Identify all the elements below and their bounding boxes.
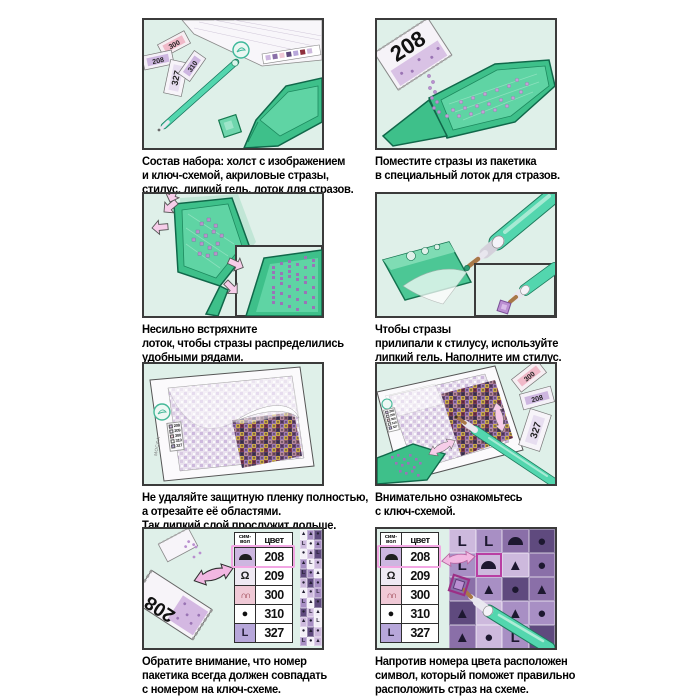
half-circle-symbol xyxy=(508,537,523,545)
color-key-table: сим- волцвет208Ω209∩∩300●310L327 xyxy=(234,532,293,643)
hook-symbol: Ω xyxy=(387,571,396,582)
color-column-header: цвет xyxy=(255,532,292,547)
triangle-symbol: ▲ xyxy=(315,542,320,548)
pattern-cell: ● xyxy=(300,549,307,559)
letter-l-symbol: L xyxy=(302,542,305,548)
pattern-cell: L xyxy=(307,608,314,618)
pattern-cell: ▲ xyxy=(314,637,321,647)
pattern-cell: ● xyxy=(314,578,321,588)
color-number-cell: 310 xyxy=(401,604,438,623)
half-circle-symbol xyxy=(239,554,252,561)
film-illustration-frame: МОСФА 208209300310327 xyxy=(142,362,324,486)
letter-l-symbol: L xyxy=(242,628,249,639)
letter-l-symbol: L xyxy=(458,558,467,573)
mini-key-row: 327 xyxy=(389,425,398,431)
pattern-cell: ▲ xyxy=(449,625,476,649)
key-table-row: L327 xyxy=(380,623,438,642)
triangle-symbol: ▲ xyxy=(308,600,313,606)
triangle-symbol: ▲ xyxy=(308,629,313,635)
pattern-cell xyxy=(476,601,503,625)
dot-symbol: ● xyxy=(302,610,305,616)
gel-illustration xyxy=(377,194,555,316)
pattern-cell: ▲ xyxy=(529,577,556,601)
dot-symbol: ● xyxy=(511,582,520,597)
triangle-symbol: ▲ xyxy=(301,532,306,538)
arch-symbol: ∩∩ xyxy=(241,591,250,600)
rhinestone-packets: 300 208 327 310 xyxy=(144,31,206,97)
pattern-cell xyxy=(502,529,529,553)
pattern-cell: ▲ xyxy=(300,559,307,569)
triangle-symbol: ▲ xyxy=(315,610,320,616)
symbol-illustration-frame: LL●L▲●▲●▲▲▲●▲●L сим- волцвет208Ω209∩∩300… xyxy=(375,527,557,650)
key-table-header: сим- волцвет xyxy=(380,532,438,547)
pattern-cell: ● xyxy=(307,617,314,627)
caption-shake-tray: Несильно встряхните лоток, чтобы стразы … xyxy=(142,323,371,365)
symbol-cell: Ω xyxy=(234,566,255,585)
panel-kit-contents: 300 208 327 310 xyxy=(142,18,324,197)
shake-illustration xyxy=(144,194,322,316)
symbol-cell: ● xyxy=(234,604,255,623)
shake-illustration-frame xyxy=(142,192,324,318)
triangle-symbol: ▲ xyxy=(308,551,313,557)
pattern-cell: L xyxy=(300,637,307,647)
pattern-cell: ● xyxy=(307,540,314,550)
color-number-cell: 327 xyxy=(255,623,292,642)
dot-symbol: ● xyxy=(316,561,319,567)
symbol-cell: L xyxy=(234,623,255,642)
dot-symbol: ● xyxy=(309,619,312,625)
pattern-cell: L xyxy=(300,598,307,608)
dot-symbol: ● xyxy=(309,571,312,577)
dot-symbol: ● xyxy=(316,600,319,606)
pattern-cell: ● xyxy=(314,598,321,608)
pattern-cell: ● xyxy=(314,530,321,540)
triangle-symbol: ▲ xyxy=(455,606,470,621)
pattern-cell: ▲ xyxy=(307,578,314,588)
pattern-cell: L xyxy=(314,549,321,559)
pattern-cell: L xyxy=(476,529,503,553)
pattern-cell: ▲ xyxy=(314,608,321,618)
hook-symbol: Ω xyxy=(241,571,250,582)
pattern-cell: ▲ xyxy=(307,598,314,608)
mini-key-number: 327 xyxy=(176,443,183,448)
pattern-cell xyxy=(449,577,476,601)
caption-kit-contents: Состав набора: холст с изображением и кл… xyxy=(142,155,371,197)
key-table-row: ●310 xyxy=(234,604,292,623)
panel-number-match: 208 сим- волцвет208Ω209∩∩300●310L327 ▲▲●… xyxy=(142,527,324,697)
triangle-symbol: ▲ xyxy=(301,561,306,567)
pattern-cell: L xyxy=(314,617,321,627)
triangle-symbol: ▲ xyxy=(315,571,320,577)
letter-l-symbol: L xyxy=(511,630,520,645)
kit-illustration: 300 208 327 310 xyxy=(144,20,322,148)
pattern-cell: ▲ xyxy=(502,601,529,625)
dot-symbol: ● xyxy=(537,606,546,621)
half-circle-symbol xyxy=(385,554,398,561)
color-column-header: цвет xyxy=(401,532,438,547)
pattern-cell: ● xyxy=(300,578,307,588)
triangle-symbol: ▲ xyxy=(534,582,549,597)
pattern-cell: ● xyxy=(300,627,307,637)
key-table-row: 208 xyxy=(380,547,438,566)
pattern-cell: ▲ xyxy=(314,540,321,550)
dot-symbol: ● xyxy=(242,609,249,620)
match-illustration: 208 xyxy=(144,529,322,648)
color-number-cell: 327 xyxy=(401,623,438,642)
symbol-cell: ● xyxy=(380,604,401,623)
gel-square xyxy=(219,115,242,138)
key-illustration: 300 208 327 xyxy=(377,364,555,484)
color-number-cell: 209 xyxy=(255,566,292,585)
key-table-row: ●310 xyxy=(380,604,438,623)
panel-sticky-gel: Чтобы стразы прилипали к стилусу, исполь… xyxy=(375,192,557,365)
key-illustration-frame: 300 208 327 xyxy=(375,362,557,486)
triangle-symbol: ▲ xyxy=(508,558,523,573)
half-circle-symbol xyxy=(481,561,496,569)
pattern-cell: ● xyxy=(307,637,314,647)
stylus-pen xyxy=(464,194,555,271)
triangle-symbol: ▲ xyxy=(481,582,496,597)
letter-l-symbol: L xyxy=(316,551,319,557)
dot-symbol: ● xyxy=(302,581,305,587)
color-number-cell: 208 xyxy=(401,547,438,566)
pattern-cell xyxy=(529,625,556,649)
mini-key-number: 327 xyxy=(392,425,398,430)
panel-pour-stones: 208 Поместите стразы из пакетика в специ… xyxy=(375,18,557,183)
key-table-header: сим- волцвет xyxy=(234,532,292,547)
symbol-cell: L xyxy=(380,623,401,642)
pour-illustration: 208 xyxy=(377,20,555,148)
pattern-cell: ▲ xyxy=(476,577,503,601)
symbol-cell: Ω xyxy=(380,566,401,585)
pattern-cell: L xyxy=(300,569,307,579)
symbol-cell: ∩∩ xyxy=(234,585,255,604)
color-number-cell: 300 xyxy=(401,585,438,604)
pattern-cell xyxy=(476,553,503,577)
match-double-arrow xyxy=(192,561,236,588)
pattern-cell: ● xyxy=(529,553,556,577)
symbol-cell xyxy=(234,547,255,566)
pattern-cell: ● xyxy=(314,627,321,637)
pattern-cell: ▲ xyxy=(300,530,307,540)
pattern-cell: ▲ xyxy=(307,627,314,637)
gel-illustration-frame xyxy=(375,192,557,318)
key-table-row: Ω209 xyxy=(380,566,438,585)
dot-symbol: ● xyxy=(388,609,395,620)
inset-aligned-rows xyxy=(236,246,322,316)
key-table-row: Ω209 xyxy=(234,566,292,585)
pattern-cell: L xyxy=(449,553,476,577)
letter-l-symbol: L xyxy=(302,571,305,577)
pattern-cell: ▲ xyxy=(300,617,307,627)
pattern-cell: L xyxy=(314,588,321,598)
pattern-cell: ▲ xyxy=(307,530,314,540)
caption-number-match: Обратите внимание, что номер пакетика вс… xyxy=(142,655,371,697)
pattern-cell: ▲ xyxy=(502,553,529,577)
letter-l-symbol: L xyxy=(484,534,493,549)
letter-l-symbol: L xyxy=(316,590,319,596)
dot-symbol: ● xyxy=(309,542,312,548)
caption-pour-stones: Поместите стразы из пакетика в специальн… xyxy=(375,155,604,183)
dot-symbol: ● xyxy=(309,590,312,596)
dot-symbol: ● xyxy=(316,532,319,538)
dot-symbol: ● xyxy=(302,551,305,557)
pattern-cell: ● xyxy=(314,559,321,569)
triangle-symbol: ▲ xyxy=(308,532,313,538)
mini-key-row: 327 xyxy=(171,443,183,449)
pour-illustration-frame: 208 xyxy=(375,18,557,150)
letter-l-symbol: L xyxy=(309,610,312,616)
triangle-symbol: ▲ xyxy=(308,581,313,587)
panel-symbol-placement: LL●L▲●▲●▲▲▲●▲●L сим- волцвет208Ω209∩∩300… xyxy=(375,527,557,697)
dot-symbol: ● xyxy=(537,534,546,549)
letter-l-symbol: L xyxy=(309,561,312,567)
color-number-cell: 208 xyxy=(255,547,292,566)
pattern-cell: ● xyxy=(307,569,314,579)
pattern-cell: L xyxy=(300,540,307,550)
match-illustration-frame: 208 сим- волцвет208Ω209∩∩300●310L327 ▲▲●… xyxy=(142,527,324,650)
dot-symbol: ● xyxy=(316,629,319,635)
key-table-row: 208 xyxy=(234,547,292,566)
pattern-cell: L xyxy=(449,529,476,553)
symbol-column-header: сим- вол xyxy=(380,532,401,547)
letter-l-symbol: L xyxy=(302,639,305,645)
pattern-cell: L xyxy=(307,559,314,569)
triangle-symbol: ▲ xyxy=(455,630,470,645)
empty-packet xyxy=(158,529,197,562)
pattern-cell: ● xyxy=(502,577,529,601)
key-table-row: ∩∩300 xyxy=(380,585,438,604)
letter-l-symbol: L xyxy=(302,600,305,606)
pattern-cell: ● xyxy=(529,601,556,625)
pattern-cell: ▲ xyxy=(307,549,314,559)
pattern-cell: ▲ xyxy=(449,601,476,625)
panel-protective-film: МОСФА 208209300310327 Не удаляйте защитн… xyxy=(142,362,324,533)
arch-symbol: ∩∩ xyxy=(387,591,396,600)
dot-symbol: ● xyxy=(302,629,305,635)
inset-stylus-stone xyxy=(475,264,555,316)
pattern-cell: ● xyxy=(476,625,503,649)
caption-symbol-placement: Напротив номера цвета расположен символ,… xyxy=(375,655,604,697)
gel-pad xyxy=(383,242,471,304)
color-number-cell: 209 xyxy=(401,566,438,585)
pattern-cell: ● xyxy=(300,608,307,618)
symbol-column-header: сим- вол xyxy=(234,532,255,547)
color-number-cell: 300 xyxy=(255,585,292,604)
pattern-cell: ▲ xyxy=(314,569,321,579)
dot-symbol: ● xyxy=(316,581,319,587)
letter-l-symbol: L xyxy=(458,534,467,549)
pattern-cell: ● xyxy=(307,588,314,598)
pattern-cell: L xyxy=(502,625,529,649)
pattern-cell: ▲ xyxy=(300,588,307,598)
panel-study-key: 300 208 327 xyxy=(375,362,557,519)
triangle-symbol: ▲ xyxy=(301,590,306,596)
triangle-symbol: ▲ xyxy=(315,639,320,645)
rhinestone-tray xyxy=(244,78,322,148)
mini-key-chip xyxy=(171,444,175,448)
dot-symbol: ● xyxy=(537,558,546,573)
symbol-cell: ∩∩ xyxy=(380,585,401,604)
pattern-cell: ● xyxy=(529,529,556,553)
triangle-symbol: ▲ xyxy=(301,619,306,625)
color-key-table: сим- волцвет208Ω209∩∩300●310L327 xyxy=(380,532,439,643)
instruction-sheet: { "colors": { "panel_bg": "#dff0e9", "pa… xyxy=(0,0,700,700)
panel-shake-tray: Несильно встряхните лоток, чтобы стразы … xyxy=(142,192,324,365)
kit-illustration-frame: 300 208 327 310 xyxy=(142,18,324,150)
caption-sticky-gel: Чтобы стразы прилипали к стилусу, исполь… xyxy=(375,323,604,365)
packet-208: 208 xyxy=(377,20,452,90)
dot-symbol: ● xyxy=(309,639,312,645)
color-number-cell: 310 xyxy=(255,604,292,623)
key-table-row: L327 xyxy=(234,623,292,642)
pattern-strip: ▲▲●L●▲●▲L▲L●L●▲●▲●▲●LL▲●●L▲▲●L●▲●L●▲ xyxy=(300,530,322,646)
symbol-cell xyxy=(380,547,401,566)
letter-l-symbol: L xyxy=(388,628,395,639)
triangle-symbol: ▲ xyxy=(508,606,523,621)
dot-symbol: ● xyxy=(484,630,493,645)
key-table-row: ∩∩300 xyxy=(234,585,292,604)
letter-l-symbol: L xyxy=(316,619,319,625)
pattern-grid: LL●L▲●▲●▲▲▲●▲●L xyxy=(449,529,555,649)
caption-study-key: Внимательно ознакомьтесь с ключ-схемой. xyxy=(375,491,604,519)
